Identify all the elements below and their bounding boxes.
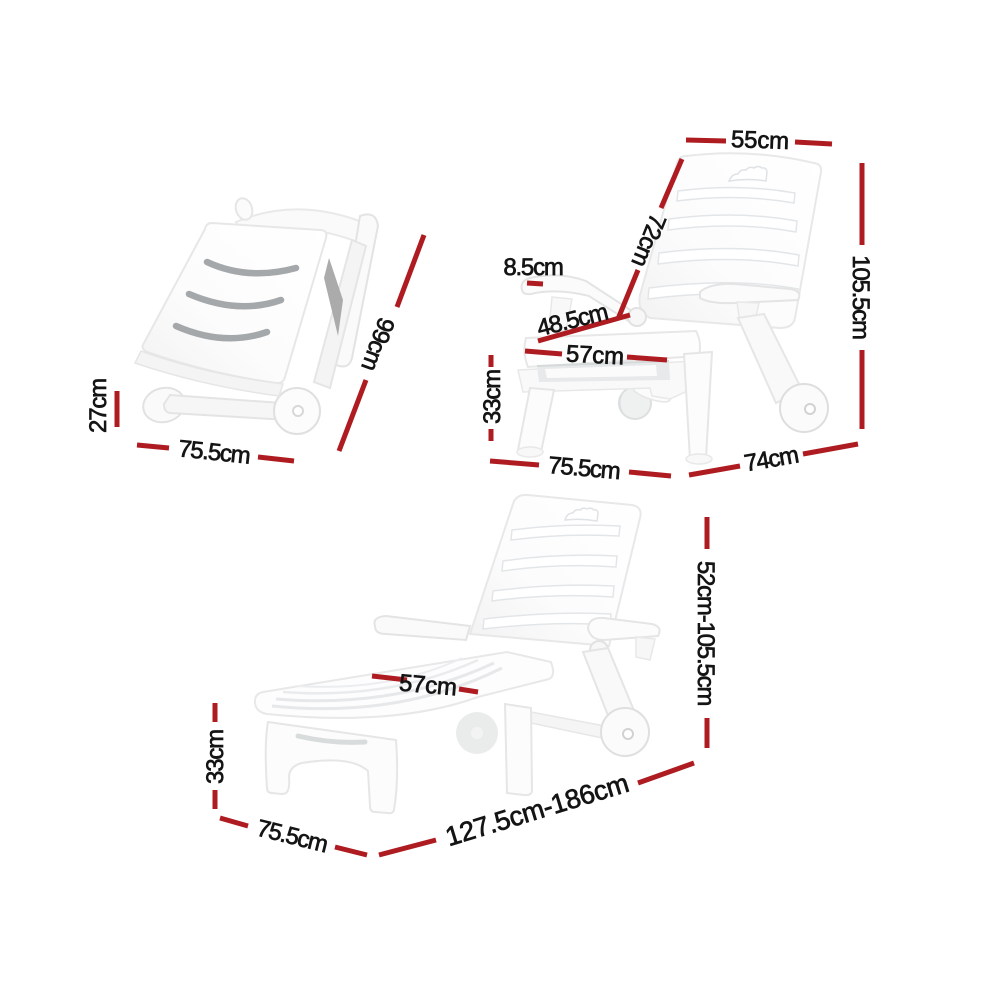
svg-text:52cm-105.5cm: 52cm-105.5cm [692,561,719,706]
svg-text:75.5cm: 75.5cm [547,452,621,485]
svg-text:75.5cm: 75.5cm [254,815,330,859]
svg-text:127.5cm-186cm: 127.5cm-186cm [442,768,632,852]
svg-text:105.5cm: 105.5cm [847,255,874,339]
svg-text:33cm: 33cm [202,730,229,784]
svg-text:33cm: 33cm [479,370,506,424]
svg-text:8.5cm: 8.5cm [503,254,563,281]
svg-text:57cm: 57cm [398,670,458,702]
svg-text:27cm: 27cm [85,379,112,433]
svg-text:75.5cm: 75.5cm [177,435,251,469]
svg-text:74cm: 74cm [742,441,800,477]
svg-text:99cm: 99cm [356,314,400,374]
svg-text:55cm: 55cm [731,126,790,155]
svg-text:57cm: 57cm [565,341,624,371]
